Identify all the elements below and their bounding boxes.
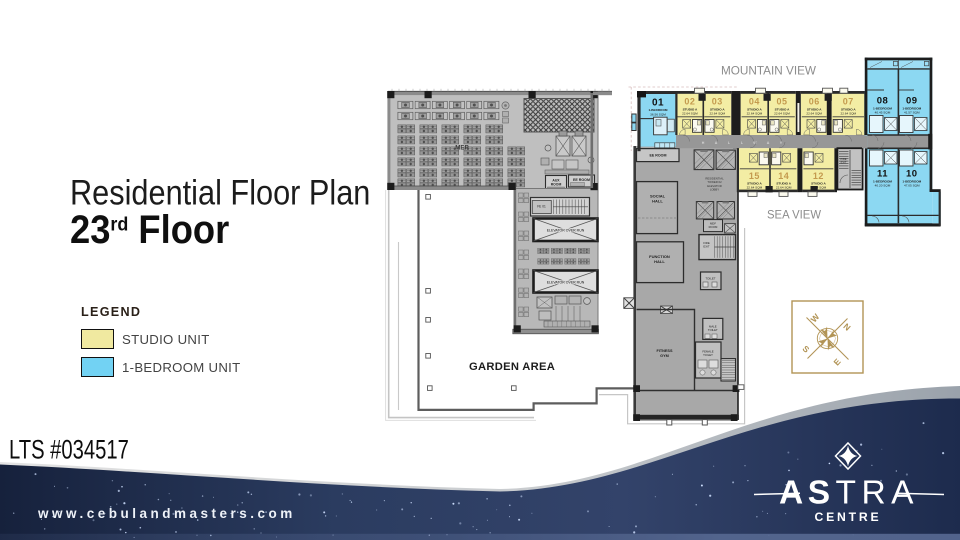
svg-text:AS: AS [779,475,835,512]
svg-text:CENTRE: CENTRE [815,510,882,524]
svg-text:TRA: TRA [836,475,920,512]
